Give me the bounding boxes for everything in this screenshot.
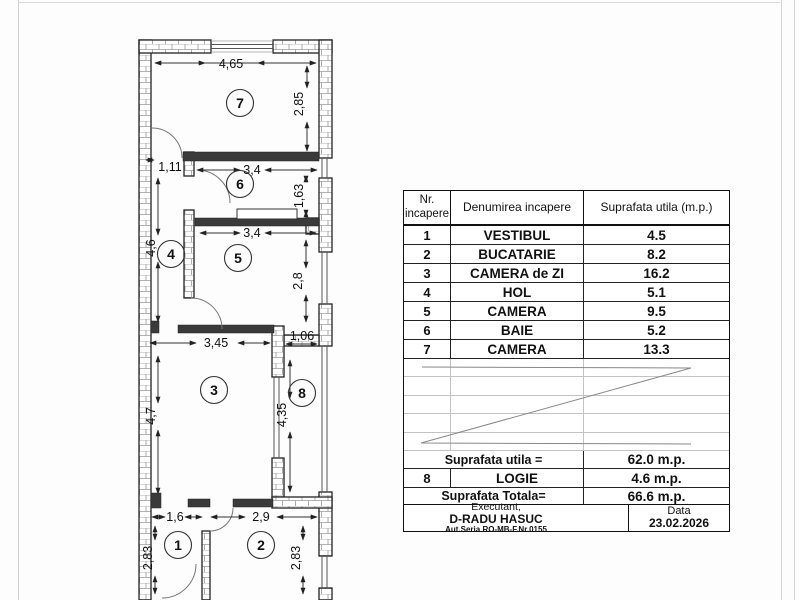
room-area: 9.5 <box>584 302 729 320</box>
summary-utila-label: Suprafata utila = <box>404 451 584 468</box>
header-nr-incapere: Nr. incapere <box>404 191 451 224</box>
dimension-label: 1,11 <box>158 160 181 174</box>
table-row: 5 CAMERA 9.5 <box>404 302 729 321</box>
dimension-label: 3,4 <box>243 226 260 240</box>
executant-authorization: Aut.Seria RO-MB-F.Nr.0155 <box>445 526 547 534</box>
dimension-label: 2,8 <box>291 272 305 289</box>
room-name: CAMERA <box>451 340 584 358</box>
date-value: 23.02.2026 <box>649 517 709 531</box>
room-nr: 2 <box>404 245 451 263</box>
door-arcs <box>152 128 233 598</box>
table-row: 7 CAMERA 13.3 <box>404 340 729 359</box>
table-row: 3 CAMERA de ZI 16.2 <box>404 264 729 283</box>
room-name: BAIE <box>451 321 584 339</box>
dimension-label: 1,63 <box>292 184 306 208</box>
radiator-niche <box>237 209 297 219</box>
door-arc <box>210 508 233 531</box>
room-area: 13.3 <box>584 340 729 358</box>
table-row: 6 BAIE 5.2 <box>404 321 729 340</box>
room-area: 5.1 <box>584 283 729 301</box>
room-name: BUCATARIE <box>451 245 584 263</box>
room-number: 8 <box>298 385 306 401</box>
dimension-label: 4,65 <box>219 57 243 71</box>
empty-rows-section <box>404 359 729 451</box>
summary-utila-row: Suprafata utila = 62.0 m.p. <box>404 451 729 469</box>
summary-utila-value: 62.0 m.p. <box>584 451 729 468</box>
room-area: 4.6 m.p. <box>584 469 729 487</box>
room-nr: 7 <box>404 340 451 358</box>
dimension-label: 3,4 <box>243 163 260 177</box>
room-nr: 5 <box>404 302 451 320</box>
room-number: 5 <box>234 250 242 266</box>
summary-totala-row: Suprafata Totala= 66.6 m.p. <box>404 488 729 505</box>
executant-cell: Executant, D-RADU HASUC Aut.Seria RO-MB-… <box>404 505 629 531</box>
room-name: CAMERA de ZI <box>451 264 584 282</box>
table-row: 4 HOL 5.1 <box>404 283 729 302</box>
room-name: LOGIE <box>451 469 584 487</box>
room-number: 1 <box>174 537 182 553</box>
header-suprafata: Suprafata utila (m.p.) <box>584 191 729 224</box>
dimension-label: 2,83 <box>289 546 303 570</box>
room-number: 4 <box>167 246 175 262</box>
room-number: 2 <box>257 537 265 553</box>
summary-totala-value: 66.6 m.p. <box>584 488 729 504</box>
dimension-label: 2,83 <box>141 546 155 570</box>
logie-row: 8 LOGIE 4.6 m.p. <box>404 469 729 488</box>
room-nr: 8 <box>404 469 451 487</box>
room-area: 8.2 <box>584 245 729 263</box>
room-area: 16.2 <box>584 264 729 282</box>
strike-through-z-line <box>404 359 731 451</box>
table-row: 1 VESTIBUL 4.5 <box>404 226 729 245</box>
door-arc <box>197 170 230 203</box>
header-denumire: Denumirea incapere <box>451 191 584 224</box>
dimension-label: 1,06 <box>290 329 314 343</box>
room-number: 6 <box>236 176 244 192</box>
dimension-label: 4,7 <box>144 407 158 424</box>
executant-name: D-RADU HASUC <box>449 513 542 526</box>
room-nr: 3 <box>404 264 451 282</box>
table-header-row: Nr. incapere Denumirea incapere Suprafat… <box>404 191 729 226</box>
room-area: 4.5 <box>584 226 729 244</box>
room-nr: 1 <box>404 226 451 244</box>
door-arc <box>162 564 196 598</box>
dimension-label: 1,6 <box>166 510 183 524</box>
room-name: CAMERA <box>451 302 584 320</box>
header-nr-line1: Nr. <box>420 194 435 207</box>
dimension-label: 4,35 <box>275 403 289 427</box>
room-nr: 6 <box>404 321 451 339</box>
room-area: 5.2 <box>584 321 729 339</box>
scanned-floor-plan-page: { "plan": { "rooms": ["1","2","3","4","5… <box>0 0 800 600</box>
room-name: HOL <box>451 283 584 301</box>
dimension-label: 4,6 <box>144 239 158 256</box>
door-arc <box>191 298 222 329</box>
table-row: 2 BUCATARIE 8.2 <box>404 245 729 264</box>
dimension-label: 2,9 <box>252 510 269 524</box>
door-arc <box>152 128 182 158</box>
header-nr-line2: incapere <box>405 208 449 221</box>
room-area-table: Nr. incapere Denumirea incapere Suprafat… <box>403 190 730 532</box>
room-nr: 4 <box>404 283 451 301</box>
dimension-label: 2,85 <box>292 92 306 116</box>
room-number: 7 <box>236 95 244 111</box>
dimension-label: 3,45 <box>204 336 228 350</box>
signature-row: Executant, D-RADU HASUC Aut.Seria RO-MB-… <box>404 505 729 531</box>
room-name: VESTIBUL <box>451 226 584 244</box>
date-cell: Data 23.02.2026 <box>629 505 729 531</box>
room-number: 3 <box>210 382 218 398</box>
